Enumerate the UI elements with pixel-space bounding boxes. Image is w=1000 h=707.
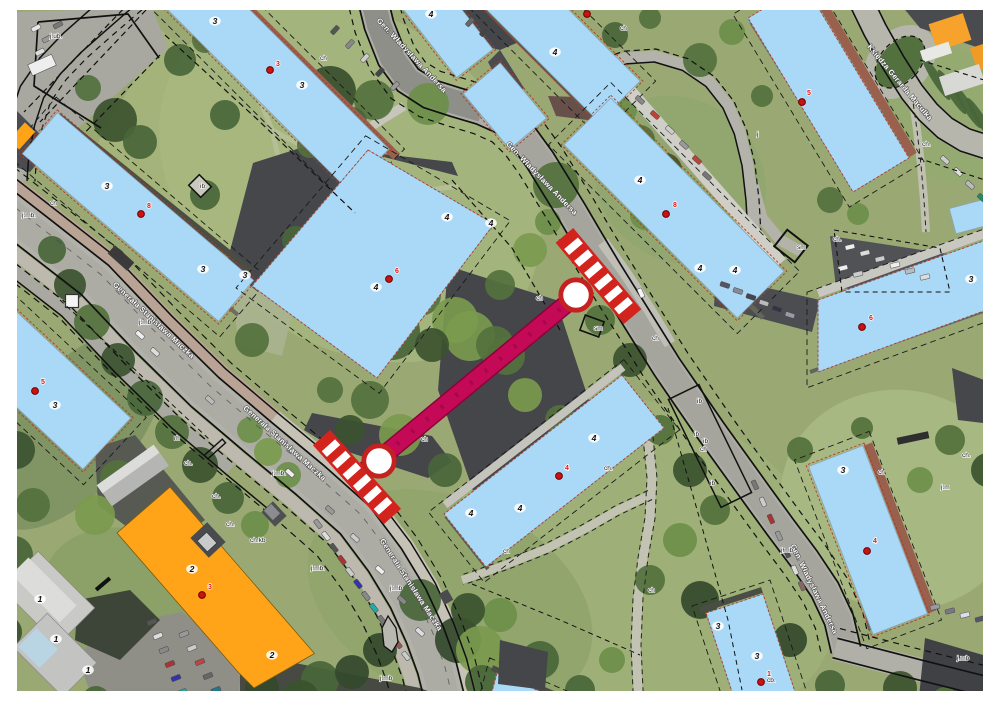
- svg-text:3: 3: [300, 80, 305, 90]
- svg-text:ch.: ch.: [922, 141, 931, 148]
- svg-text:ch.: ch.: [226, 521, 235, 528]
- svg-text:ch: ch: [421, 436, 428, 443]
- svg-text:ib: ib: [694, 431, 699, 438]
- svg-text:ch.: ch.: [604, 465, 613, 472]
- svg-text:4: 4: [637, 175, 643, 185]
- svg-text:ib: ib: [200, 183, 205, 190]
- svg-text:4: 4: [373, 282, 379, 292]
- svg-text:4: 4: [565, 465, 569, 472]
- svg-text:3: 3: [105, 181, 110, 191]
- svg-text:ib: ib: [710, 480, 715, 487]
- svg-text:4: 4: [873, 538, 877, 545]
- svg-text:ch: ch: [652, 335, 659, 342]
- svg-text:ch: ch: [648, 587, 655, 594]
- svg-text:4: 4: [468, 508, 474, 518]
- svg-text:sm: sm: [594, 325, 603, 332]
- svg-text:j.mb: j.mb: [379, 675, 393, 682]
- svg-text:j.mb: j.mb: [138, 319, 152, 326]
- svg-text:ib: ib: [697, 398, 702, 405]
- svg-text:6: 6: [395, 268, 399, 275]
- svg-text:4: 4: [697, 263, 703, 273]
- svg-text:4: 4: [591, 433, 597, 443]
- svg-text:3: 3: [755, 651, 760, 661]
- svg-text:3: 3: [243, 270, 248, 280]
- svg-text:j.mb: j.mb: [780, 547, 794, 554]
- svg-text:j.mb.: j.mb.: [310, 565, 325, 572]
- svg-text:3: 3: [276, 61, 280, 68]
- svg-text:ch: ch: [700, 446, 707, 453]
- svg-text:j.mb.: j.mb.: [271, 470, 286, 477]
- svg-text:8: 8: [147, 203, 151, 210]
- svg-text:j: j: [756, 131, 758, 138]
- svg-text:1: 1: [38, 594, 43, 604]
- svg-text:ch.: ch.: [962, 452, 971, 459]
- svg-text:j.mb: j.mb: [389, 585, 403, 592]
- svg-text:ch: ch: [878, 469, 885, 476]
- svg-text:6: 6: [869, 315, 873, 322]
- svg-text:rh: rh: [174, 435, 180, 442]
- svg-text:j.mb: j.mb: [956, 655, 970, 662]
- svg-text:3: 3: [208, 584, 212, 591]
- svg-text:sm: sm: [797, 244, 806, 251]
- svg-text:4: 4: [444, 212, 450, 222]
- svg-text:ch.: ch.: [184, 460, 193, 467]
- svg-text:4: 4: [488, 218, 494, 228]
- svg-text:ch.: ch.: [212, 493, 221, 500]
- svg-text:ch.: ch.: [833, 236, 842, 243]
- svg-text:3: 3: [841, 465, 846, 475]
- svg-text:4: 4: [517, 503, 523, 513]
- svg-text:2: 2: [269, 650, 275, 660]
- svg-text:ch: ch: [503, 548, 510, 555]
- svg-text:ch.kb: ch.kb: [250, 537, 266, 544]
- svg-text:3: 3: [213, 16, 218, 26]
- svg-text:ch: ch: [50, 200, 57, 207]
- svg-text:3: 3: [201, 264, 206, 274]
- svg-text:ch: ch: [620, 25, 627, 32]
- svg-text:3: 3: [969, 274, 974, 284]
- svg-text:4: 4: [428, 9, 434, 19]
- svg-text:4: 4: [552, 47, 558, 57]
- svg-text:1: 1: [86, 665, 91, 675]
- svg-text:5: 5: [807, 90, 811, 97]
- svg-text:ch: ch: [320, 55, 327, 62]
- svg-text:ib: ib: [703, 438, 708, 445]
- svg-text:j.mb.: j.mb.: [21, 212, 36, 219]
- svg-text:1: 1: [54, 634, 59, 644]
- svg-text:5: 5: [41, 379, 45, 386]
- svg-text:8: 8: [673, 202, 677, 209]
- svg-text:2: 2: [189, 564, 195, 574]
- svg-text:4: 4: [732, 265, 738, 275]
- svg-text:ch: ch: [536, 295, 543, 302]
- svg-text:cb.: cb.: [767, 677, 776, 684]
- svg-text:j.m: j.m: [940, 484, 950, 491]
- svg-text:3: 3: [716, 621, 721, 631]
- svg-text:3: 3: [53, 400, 58, 410]
- svg-text:j.ub.: j.ub.: [49, 33, 62, 40]
